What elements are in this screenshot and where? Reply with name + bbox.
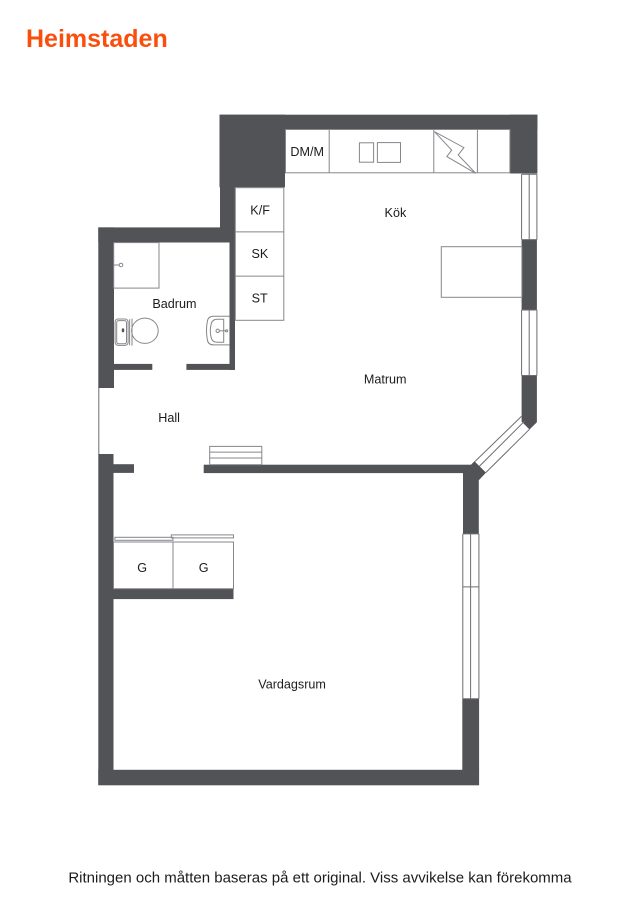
svg-text:Badrum: Badrum bbox=[152, 297, 196, 311]
svg-text:DM/M: DM/M bbox=[290, 145, 324, 159]
svg-text:Hall: Hall bbox=[158, 411, 180, 425]
svg-text:Vardagsrum: Vardagsrum bbox=[258, 677, 326, 691]
svg-text:Ritningen och måtten baseras p: Ritningen och måtten baseras på ett orig… bbox=[68, 870, 572, 887]
svg-text:ST: ST bbox=[252, 291, 268, 305]
svg-text:SK: SK bbox=[251, 247, 268, 261]
svg-text:G: G bbox=[199, 561, 209, 575]
svg-text:Matrum: Matrum bbox=[364, 373, 407, 387]
svg-text:Heimstaden: Heimstaden bbox=[26, 25, 168, 53]
svg-text:K/F: K/F bbox=[250, 203, 270, 217]
svg-text:G: G bbox=[137, 561, 147, 575]
svg-text:Kök: Kök bbox=[385, 206, 407, 220]
